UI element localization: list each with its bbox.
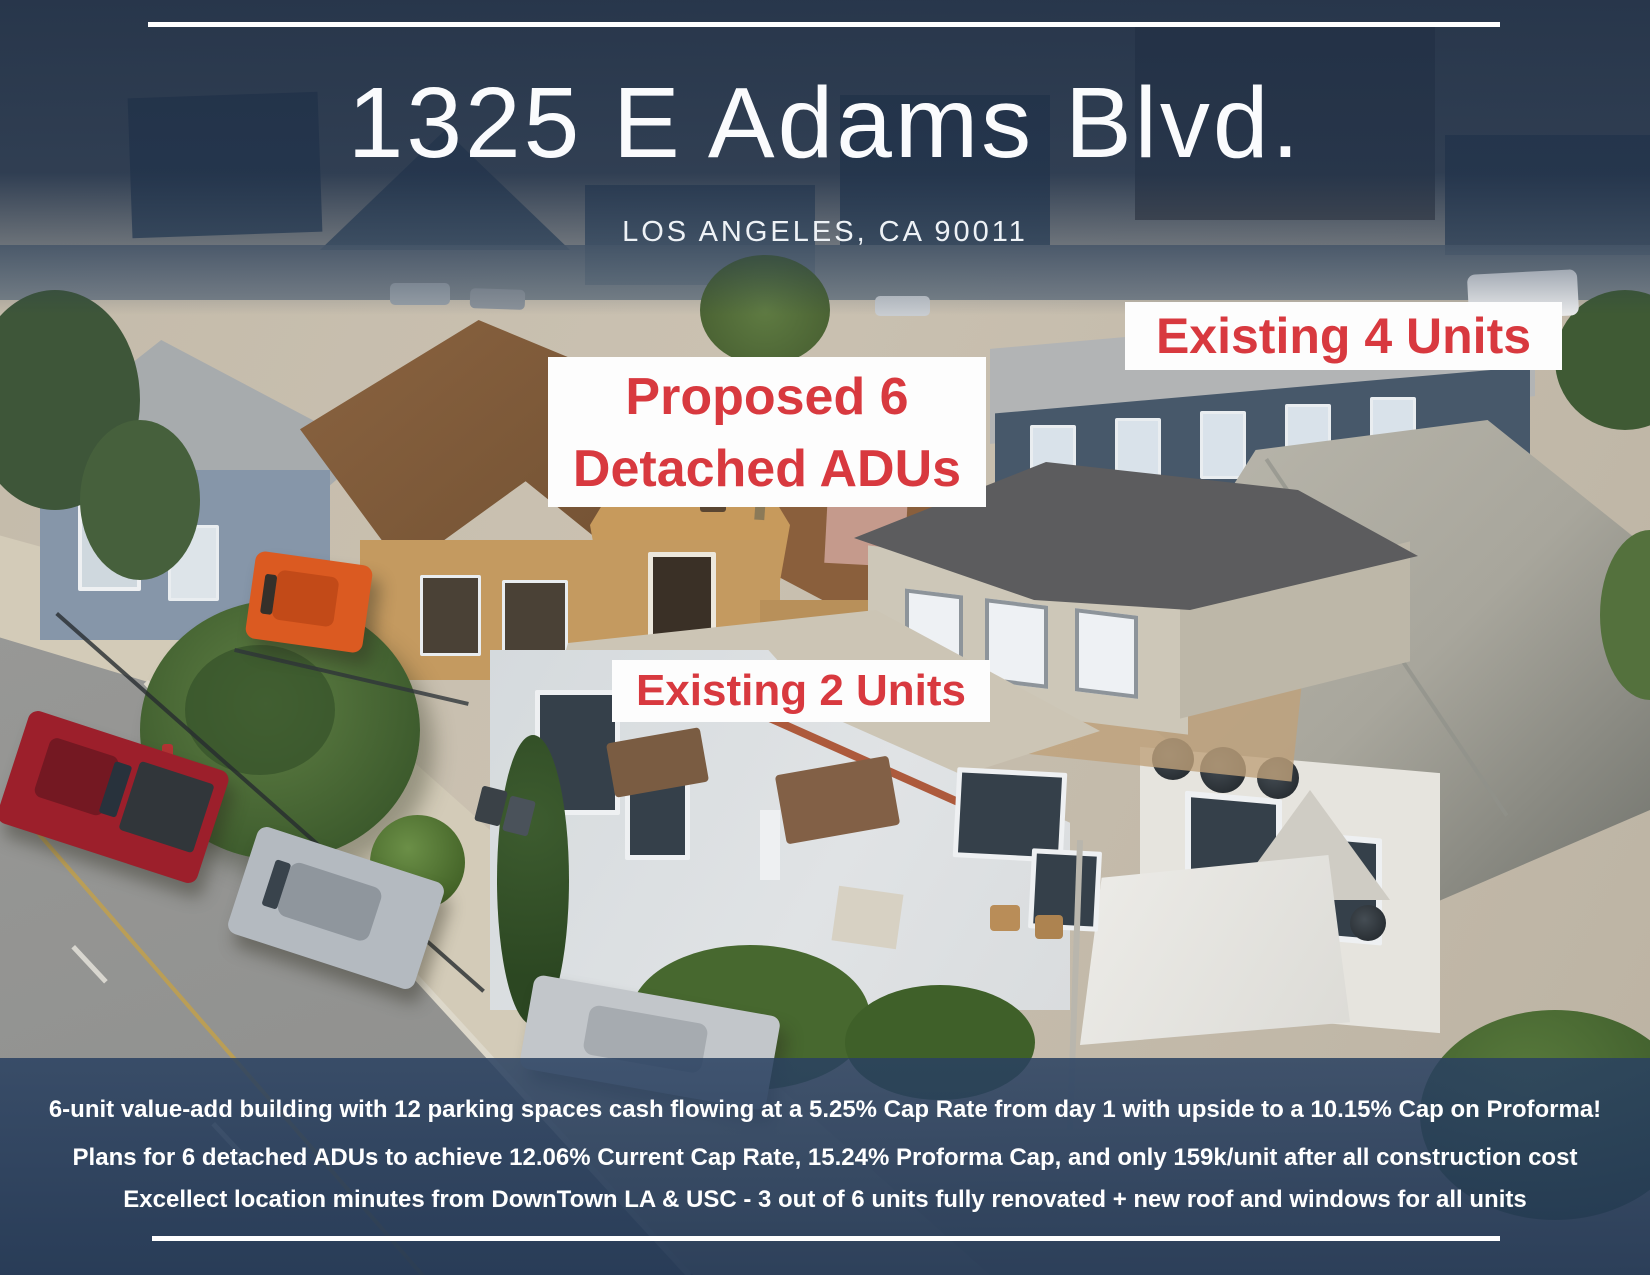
label-proposed-line2: Detached ADUs bbox=[548, 433, 986, 505]
orange-suv-roof bbox=[271, 569, 339, 627]
porch-steps bbox=[831, 886, 903, 950]
label-proposed-adus: Proposed 6 Detached ADUs bbox=[548, 357, 986, 507]
flyer: 1325 E Adams Blvd. LOS ANGELES, CA 90011… bbox=[0, 0, 1650, 1275]
label-proposed-line1: Proposed 6 bbox=[548, 361, 986, 433]
bottom-divider-line bbox=[152, 1236, 1500, 1241]
label-existing-2-units: Existing 2 Units bbox=[612, 660, 990, 722]
label-existing-4-units: Existing 4 Units bbox=[1125, 302, 1562, 370]
orange-suv bbox=[244, 550, 373, 654]
adu-window bbox=[1075, 608, 1138, 699]
tree bbox=[80, 420, 200, 580]
footer-line-3: Excellect location minutes from DownTown… bbox=[0, 1186, 1650, 1214]
patio-chair bbox=[1035, 915, 1063, 939]
satellite-dish bbox=[1350, 905, 1386, 941]
window bbox=[1200, 411, 1246, 479]
footer-line-1: 6-unit value-add building with 12 parkin… bbox=[0, 1096, 1650, 1124]
truck-bed bbox=[118, 761, 214, 854]
page-subtitle: LOS ANGELES, CA 90011 bbox=[0, 216, 1650, 249]
footer-line-2: Plans for 6 detached ADUs to achieve 12.… bbox=[0, 1144, 1650, 1172]
suv-roof bbox=[275, 860, 384, 943]
top-divider-line bbox=[148, 22, 1500, 27]
porch-post bbox=[760, 810, 780, 880]
white-tarp bbox=[1080, 855, 1350, 1045]
page-title: 1325 E Adams Blvd. bbox=[0, 66, 1650, 181]
tree-shadow-core bbox=[185, 645, 335, 775]
window bbox=[420, 575, 481, 656]
patio-chair bbox=[990, 905, 1020, 931]
